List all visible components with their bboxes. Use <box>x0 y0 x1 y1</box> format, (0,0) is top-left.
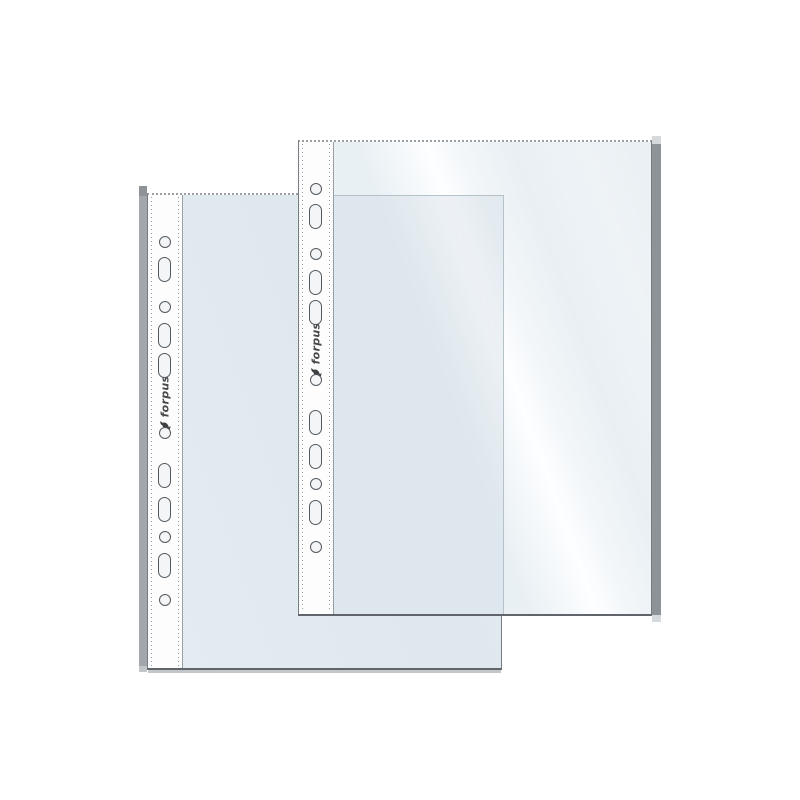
punch-hole-circle <box>310 374 322 386</box>
punch-hole-oval <box>309 444 322 469</box>
punch-hole-oval <box>158 463 171 488</box>
back-binder-strip: forpus <box>148 195 182 668</box>
back-fold-edge <box>139 186 147 672</box>
punch-hole-circle <box>310 478 322 490</box>
punch-hole-circle <box>159 594 171 606</box>
front-binder-strip: forpus <box>299 142 333 614</box>
punch-hole-circle <box>159 427 171 439</box>
punch-hole-oval <box>158 323 171 348</box>
product-image: forpus forpus <box>0 0 800 800</box>
punch-hole-circle <box>310 183 322 195</box>
punch-hole-circle <box>159 531 171 543</box>
punch-hole-circle <box>159 301 171 313</box>
perforation-line <box>329 144 330 612</box>
sheet-protector-front: forpus <box>298 140 652 616</box>
brand-logo-text: forpus <box>310 322 323 364</box>
punch-hole-circle <box>310 541 322 553</box>
punch-hole-oval <box>158 353 171 378</box>
punch-hole-circle <box>310 248 322 260</box>
punch-hole-oval <box>309 270 322 295</box>
punch-hole-oval <box>158 497 171 522</box>
brand-logo: forpus <box>299 320 333 380</box>
perforation-line <box>178 197 179 666</box>
brand-logo: forpus <box>148 373 182 433</box>
punch-hole-circle <box>159 236 171 248</box>
perforation-line <box>151 197 152 666</box>
front-film <box>333 142 651 614</box>
punch-hole-oval <box>309 204 322 229</box>
brand-logo-text: forpus <box>159 375 172 417</box>
perforation-line <box>302 144 303 612</box>
punch-hole-oval <box>309 410 322 435</box>
punch-hole-oval <box>309 500 322 525</box>
punch-hole-oval <box>309 300 322 325</box>
punch-hole-oval <box>158 553 171 578</box>
back-sheet-showthrough <box>334 195 504 614</box>
front-fold-edge <box>652 136 661 622</box>
punch-hole-oval <box>158 257 171 282</box>
